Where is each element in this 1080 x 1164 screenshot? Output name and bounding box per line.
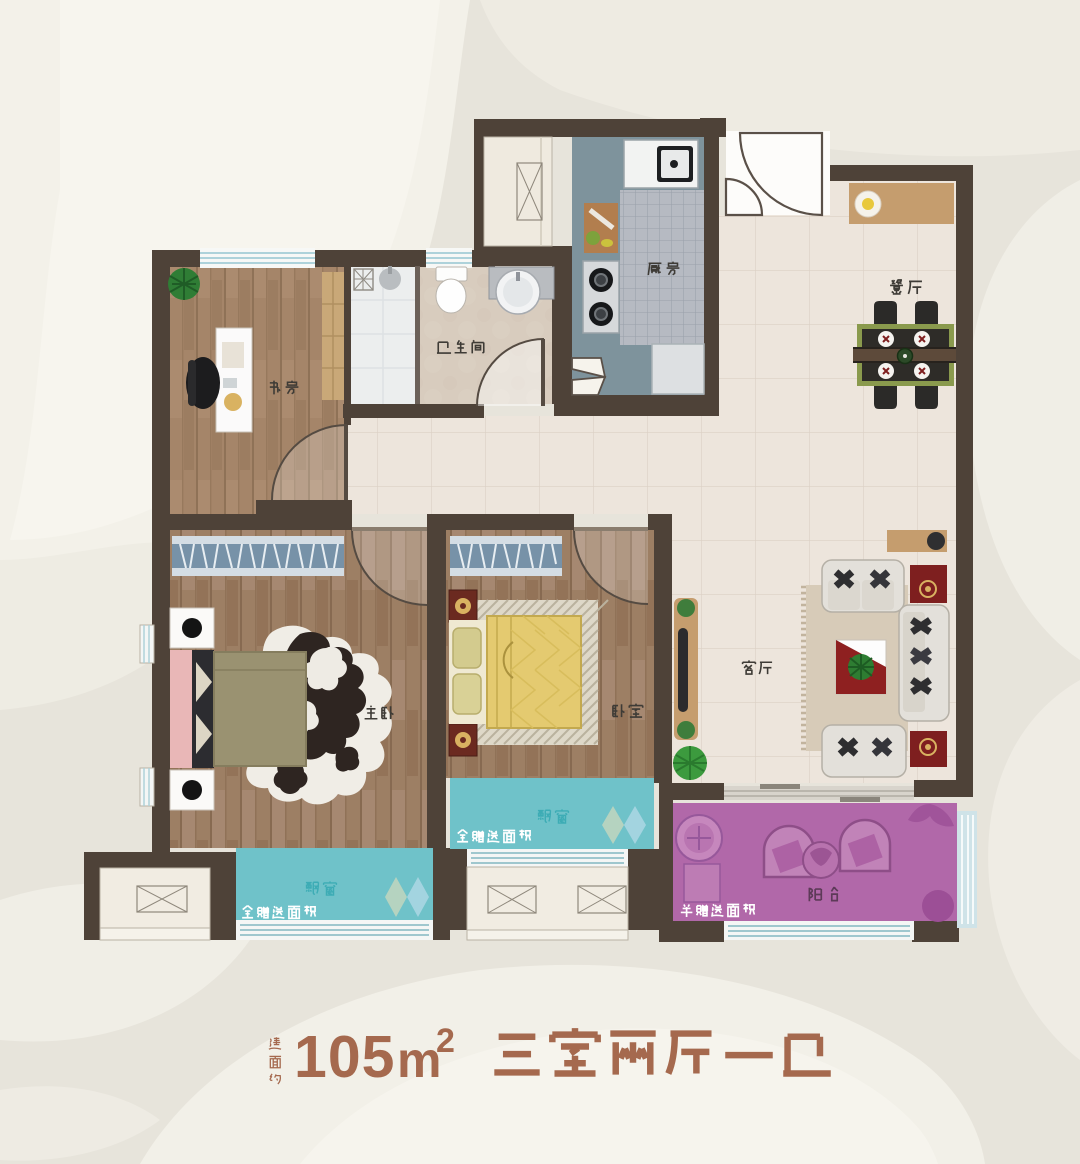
svg-text:2: 2 xyxy=(436,1022,455,1060)
svg-text:m: m xyxy=(397,1032,441,1088)
svg-text:105: 105 xyxy=(294,1024,395,1090)
